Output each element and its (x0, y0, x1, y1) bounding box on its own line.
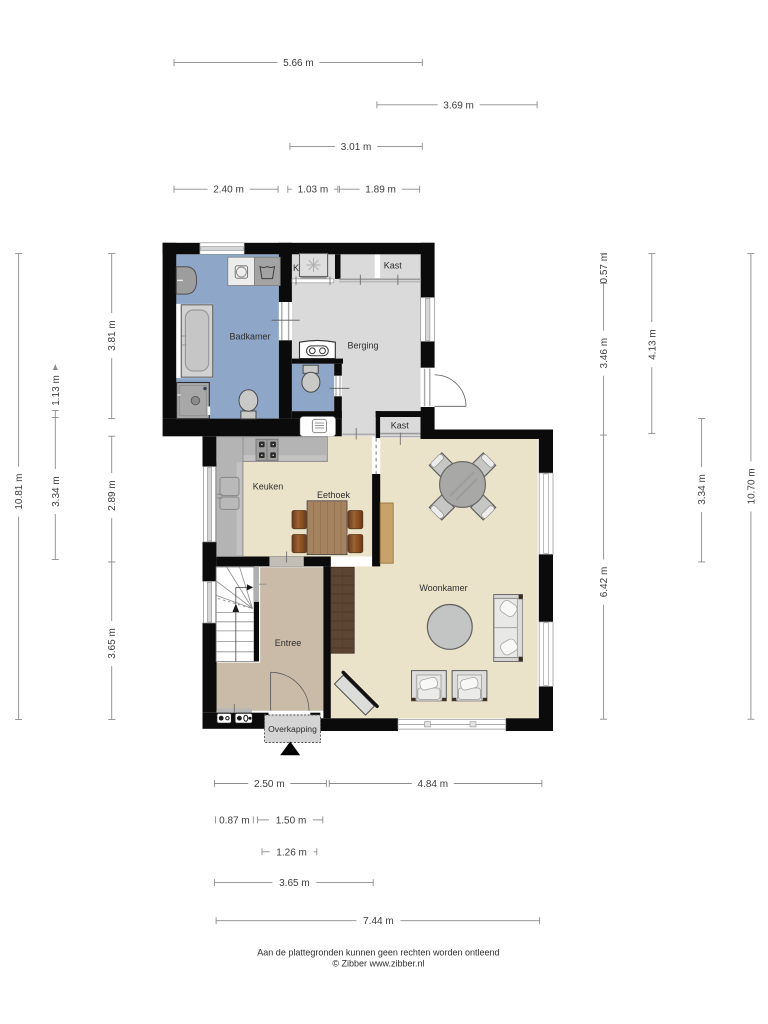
svg-text:3.01 m: 3.01 m (341, 142, 372, 153)
svg-text:3.69 m: 3.69 m (443, 100, 474, 111)
svg-text:4.13 m: 4.13 m (647, 329, 658, 360)
svg-text:3.81 m: 3.81 m (107, 320, 118, 351)
svg-text:1.89 m: 1.89 m (365, 185, 396, 196)
svg-text:2.40 m: 2.40 m (213, 185, 244, 196)
svg-text:Overkapping: Overkapping (268, 724, 317, 734)
svg-text:1.03 m: 1.03 m (298, 185, 329, 196)
svg-text:10.81 m: 10.81 m (14, 474, 25, 510)
svg-text:10.70 m: 10.70 m (746, 468, 757, 504)
svg-text:Woonkamer: Woonkamer (419, 583, 467, 593)
svg-text:© Zibber www.zibber.nl: © Zibber www.zibber.nl (332, 959, 424, 969)
svg-text:Aan de plattegronden kunnen ge: Aan de plattegronden kunnen geen rechten… (257, 948, 499, 958)
svg-text:3.65 m: 3.65 m (107, 628, 118, 659)
svg-text:K: K (293, 263, 299, 273)
svg-text:5.66 m: 5.66 m (283, 58, 314, 69)
svg-text:3.46 m: 3.46 m (599, 338, 610, 369)
svg-text:Kast: Kast (384, 260, 403, 270)
svg-text:6.42 m: 6.42 m (599, 567, 610, 598)
svg-text:1.50 m: 1.50 m (276, 815, 307, 826)
svg-text:1.26 m: 1.26 m (276, 847, 307, 858)
svg-text:3.34 m: 3.34 m (51, 476, 62, 507)
svg-text:0.87 m: 0.87 m (219, 815, 250, 826)
svg-text:4.84 m: 4.84 m (418, 779, 449, 790)
svg-text:Berging: Berging (347, 340, 378, 350)
svg-text:1.13 m: 1.13 m (51, 375, 62, 406)
svg-text:Eethoek: Eethoek (317, 490, 351, 500)
svg-text:Badkamer: Badkamer (229, 332, 270, 342)
svg-text:2.50 m: 2.50 m (254, 779, 285, 790)
svg-text:2.89 m: 2.89 m (107, 480, 118, 511)
svg-text:Kast: Kast (391, 421, 410, 431)
svg-text:3.34 m: 3.34 m (697, 474, 708, 505)
svg-text:3.65 m: 3.65 m (279, 878, 310, 889)
svg-text:Entree: Entree (275, 638, 302, 648)
svg-text:7.44 m: 7.44 m (363, 916, 394, 927)
svg-text:Keuken: Keuken (253, 482, 284, 492)
svg-text:0.57 m: 0.57 m (599, 253, 610, 284)
